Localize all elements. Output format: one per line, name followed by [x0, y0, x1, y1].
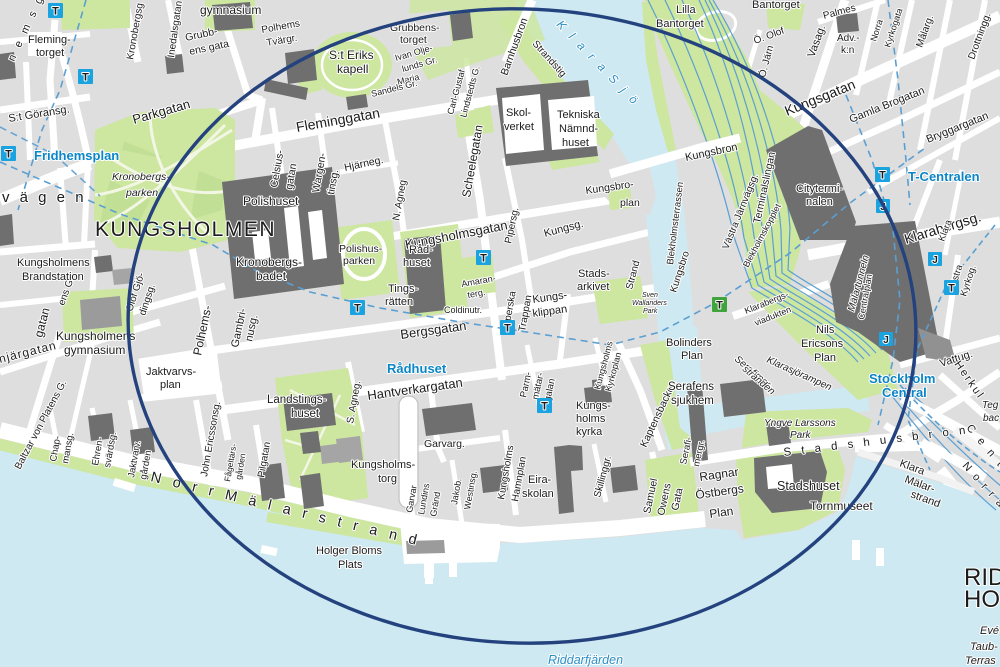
svg-text:huset: huset — [291, 408, 320, 420]
svg-text:Park: Park — [790, 430, 812, 441]
svg-text:Sven: Sven — [642, 292, 658, 299]
svg-text:Bolinders: Bolinders — [666, 337, 712, 349]
svg-text:T: T — [948, 283, 955, 295]
svg-text:Kungs-: Kungs- — [576, 400, 611, 412]
svg-text:Terras: Terras — [965, 655, 996, 667]
svg-text:torget: torget — [36, 47, 64, 59]
svg-text:parken: parken — [125, 187, 158, 199]
svg-text:kapell: kapell — [337, 62, 368, 76]
svg-text:Central: Central — [882, 385, 927, 400]
svg-text:sjukhem: sjukhem — [671, 395, 714, 407]
svg-text:Lilla: Lilla — [676, 4, 696, 16]
svg-text:Fridhemsplan: Fridhemsplan — [34, 148, 119, 163]
svg-text:T: T — [5, 149, 12, 161]
svg-text:plan: plan — [160, 379, 181, 391]
svg-text:Bantorget: Bantorget — [752, 0, 800, 11]
svg-text:Citytermi-: Citytermi- — [796, 183, 843, 195]
svg-text:verket: verket — [504, 121, 534, 133]
svg-text:kyrka: kyrka — [576, 426, 603, 438]
svg-text:Yngve Larssons: Yngve Larssons — [764, 418, 836, 429]
svg-text:holms: holms — [576, 413, 606, 425]
svg-text:Nils: Nils — [816, 324, 835, 336]
svg-text:Kronobergs-: Kronobergs- — [236, 255, 302, 269]
svg-text:parken: parken — [343, 255, 375, 267]
svg-text:T-Centralen: T-Centralen — [908, 169, 980, 184]
svg-text:Adv.-: Adv.- — [837, 33, 860, 44]
svg-text:Riddarfjärden: Riddarfjärden — [548, 653, 623, 667]
svg-text:huset: huset — [403, 257, 430, 269]
svg-text:Fleming-: Fleming- — [28, 34, 71, 46]
svg-text:Evé: Evé — [980, 625, 999, 637]
svg-text:Eira-: Eira- — [528, 474, 552, 486]
svg-text:T: T — [354, 303, 361, 315]
svg-text:Kronobergs-: Kronobergs- — [112, 171, 170, 183]
svg-text:T: T — [82, 72, 89, 84]
svg-text:J: J — [883, 335, 889, 346]
svg-text:J: J — [932, 255, 938, 266]
svg-text:HOL: HOL — [964, 586, 1000, 613]
svg-text:Park: Park — [643, 308, 658, 315]
svg-text:Tekniska: Tekniska — [557, 109, 601, 121]
svg-text:plan: plan — [620, 197, 640, 209]
svg-text:Plats: Plats — [338, 559, 363, 571]
svg-text:bac: bac — [983, 413, 999, 424]
svg-text:Kungsholms-: Kungsholms- — [351, 459, 416, 471]
svg-text:Tornmuseet: Tornmuseet — [810, 499, 873, 513]
svg-text:gymnasium: gymnasium — [64, 343, 125, 357]
svg-text:Brandstation: Brandstation — [22, 271, 84, 283]
svg-text:badet: badet — [256, 269, 287, 283]
svg-text:torg: torg — [378, 473, 397, 485]
svg-text:nalen: nalen — [806, 196, 833, 208]
svg-text:v ä g e n: v ä g e n — [2, 189, 87, 206]
svg-text:Plan: Plan — [681, 350, 703, 362]
svg-text:Kungsholmens: Kungsholmens — [56, 329, 135, 343]
svg-text:T: T — [504, 323, 511, 335]
svg-text:Teg: Teg — [982, 400, 999, 411]
svg-text:Tings-: Tings- — [388, 283, 418, 295]
svg-text:Serafens: Serafens — [668, 381, 714, 393]
svg-text:Råd-: Råd- — [409, 244, 433, 256]
svg-text:Taub-: Taub- — [970, 641, 998, 653]
svg-text:T: T — [480, 253, 487, 265]
svg-text:Garvarg.: Garvarg. — [424, 438, 465, 450]
svg-text:Kungsholmens: Kungsholmens — [17, 257, 90, 269]
svg-text:gymnasium: gymnasium — [200, 3, 261, 17]
svg-text:Stadshuset: Stadshuset — [777, 479, 840, 493]
svg-text:T: T — [52, 6, 59, 18]
svg-text:T: T — [541, 401, 548, 413]
svg-text:Polishuset: Polishuset — [243, 194, 299, 208]
svg-text:Landstings-: Landstings- — [267, 394, 327, 406]
svg-text:Plan: Plan — [814, 352, 836, 364]
svg-text:k:n: k:n — [841, 45, 854, 56]
svg-text:skolan: skolan — [522, 488, 554, 500]
svg-text:T: T — [716, 300, 723, 312]
svg-text:T: T — [879, 170, 886, 182]
svg-text:KUNGSHOLMEN: KUNGSHOLMEN — [95, 218, 276, 241]
svg-text:Wallanders: Wallanders — [632, 300, 667, 307]
svg-text:Coldinutr.: Coldinutr. — [444, 305, 482, 315]
svg-text:Skol-: Skol- — [506, 107, 531, 119]
svg-text:Nämnd-: Nämnd- — [559, 123, 598, 135]
svg-text:Ericsons: Ericsons — [801, 338, 844, 350]
svg-text:Polishus-: Polishus- — [339, 243, 383, 255]
svg-text:Stockholm: Stockholm — [869, 371, 935, 386]
svg-text:Holger Bloms: Holger Bloms — [316, 545, 383, 557]
svg-text:huset: huset — [562, 137, 589, 149]
svg-text:Stads-: Stads- — [578, 268, 610, 280]
svg-text:S:t Eriks: S:t Eriks — [329, 48, 374, 62]
svg-text:Jaktvarvs-: Jaktvarvs- — [146, 366, 196, 378]
svg-text:arkivet: arkivet — [577, 281, 609, 293]
svg-text:rätten: rätten — [385, 296, 413, 308]
svg-text:Rådhuset: Rådhuset — [387, 361, 447, 376]
svg-text:Bantorget: Bantorget — [656, 18, 704, 30]
